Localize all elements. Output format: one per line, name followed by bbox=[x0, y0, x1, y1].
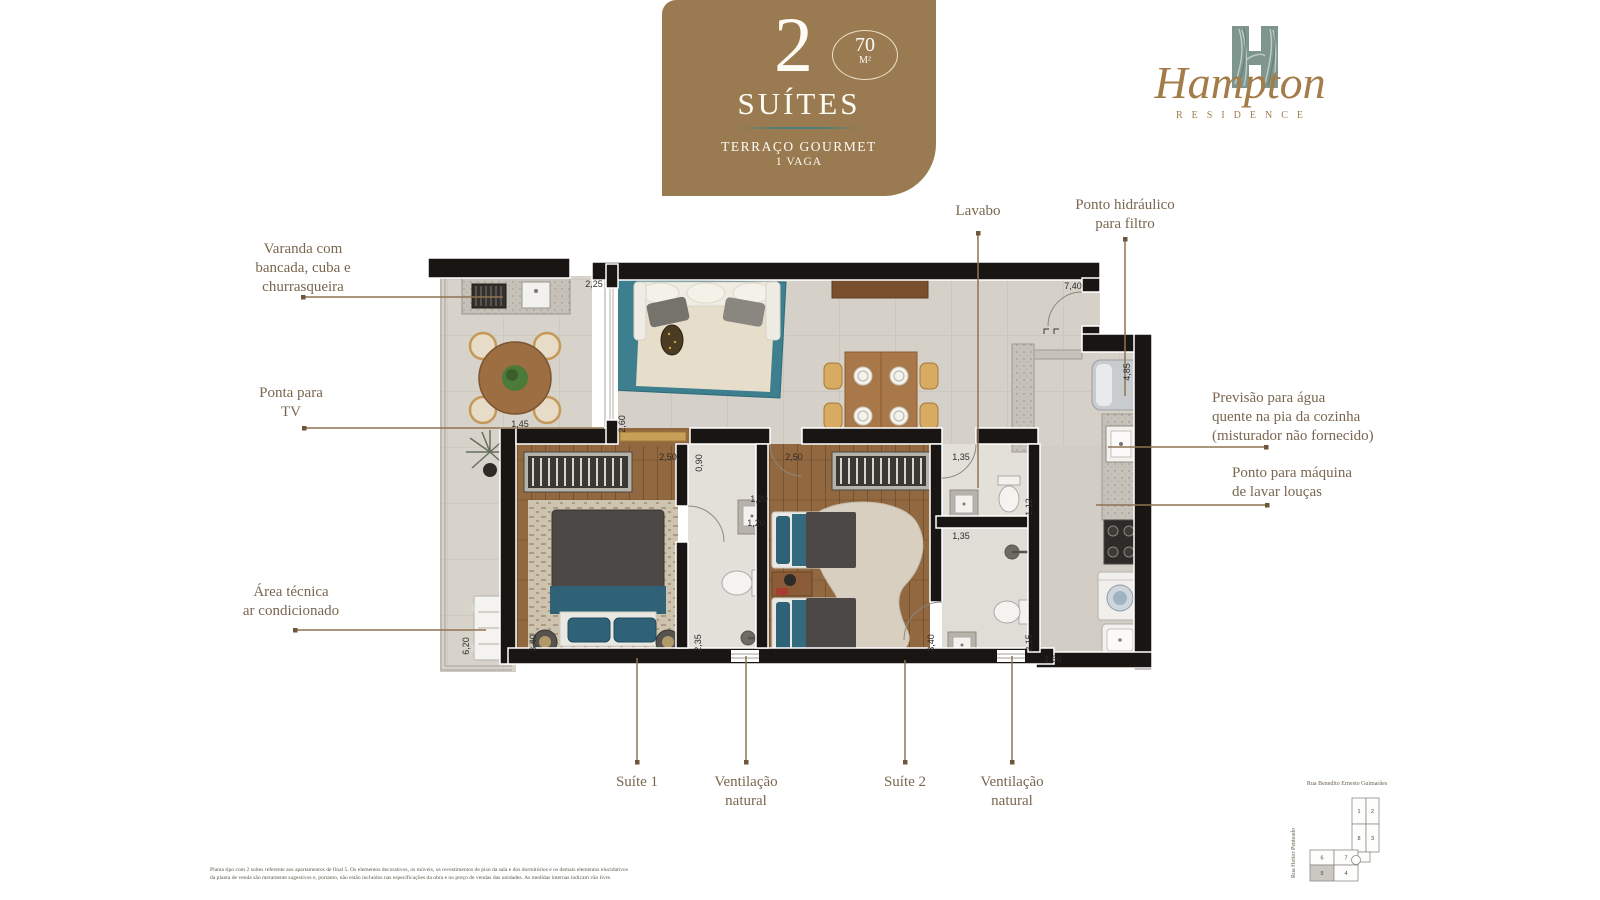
floorplan-poster: 12836754 2 70 M² SUÍTES TERRAÇO GOURMET … bbox=[0, 0, 1600, 900]
toilet-icon bbox=[994, 601, 1020, 623]
minimap-street-top: Rua Benedito Ernesto Guimarães bbox=[1307, 781, 1387, 787]
disclaimer-text: Planta tipo com 2 suítes referente aos a… bbox=[210, 866, 762, 883]
toilet-icon bbox=[999, 486, 1019, 512]
area-value: 70 bbox=[833, 34, 897, 56]
minimap-street-left: Rua Heitor Penteado bbox=[1291, 828, 1297, 878]
feature-terrace: TERRAÇO GOURMET bbox=[662, 139, 936, 155]
callout-varanda: Varanda com bancada, cuba e churrasqueir… bbox=[255, 240, 350, 297]
unit-type-label: SUÍTES bbox=[662, 86, 936, 122]
minimap-unit-number: 4 bbox=[1344, 871, 1347, 877]
varanda-dining-set bbox=[470, 333, 560, 423]
callout-lavabo: Lavabo bbox=[956, 202, 1001, 221]
sink-icon bbox=[522, 282, 550, 308]
tv-sideboard bbox=[832, 278, 928, 298]
toilet-icon bbox=[722, 571, 752, 595]
minimap-unit-number: 7 bbox=[1344, 856, 1347, 862]
site-plan-minimap: 12836754 bbox=[1310, 798, 1379, 881]
minimap-unit-number: 8 bbox=[1357, 836, 1360, 842]
callout-previsao-agua: Previsão para água quente na pia da cozi… bbox=[1212, 389, 1374, 446]
feature-parking: 1 VAGA bbox=[662, 156, 936, 168]
minimap-unit-number: 5 bbox=[1320, 871, 1323, 877]
glass-door bbox=[606, 288, 618, 420]
callout-tv: Ponta para TV bbox=[259, 384, 323, 422]
living-rug-sofa bbox=[612, 280, 786, 398]
callout-suite2: Suíte 2 bbox=[884, 773, 926, 792]
callout-suite1: Suíte 1 bbox=[616, 773, 658, 792]
unit-type-badge: 2 70 M² SUÍTES TERRAÇO GOURMET 1 VAGA bbox=[662, 0, 936, 196]
callout-maquina-loucas: Ponto para máquina de lavar louças bbox=[1232, 464, 1352, 502]
callout-vent1: Ventilação natural bbox=[714, 773, 777, 811]
callout-ponto-hidraulico: Ponto hidráulico para filtro bbox=[1075, 196, 1175, 234]
minimap-unit-number: 3 bbox=[1371, 836, 1374, 842]
bath1-floor bbox=[688, 444, 756, 648]
bed-icon bbox=[552, 510, 664, 590]
stove-icon bbox=[1104, 520, 1138, 564]
minimap-unit-number: 2 bbox=[1371, 809, 1374, 815]
hallway-console bbox=[620, 432, 686, 441]
area-badge: 70 M² bbox=[832, 30, 898, 80]
callout-area-tecnica: Área técnica ar condicionado bbox=[243, 583, 339, 621]
brand-subtitle: RESIDENCE bbox=[1160, 110, 1328, 121]
brand-name: Hampton bbox=[1128, 60, 1352, 106]
minimap-unit-number: 1 bbox=[1357, 809, 1360, 815]
ottoman-icon bbox=[661, 325, 683, 355]
suite-count: 2 bbox=[774, 6, 813, 84]
varanda-counter bbox=[462, 278, 570, 314]
minimap-unit-number: 6 bbox=[1320, 856, 1323, 862]
badge-divider bbox=[740, 127, 860, 129]
callout-vent2: Ventilação natural bbox=[980, 773, 1043, 811]
area-unit: M² bbox=[833, 56, 897, 66]
